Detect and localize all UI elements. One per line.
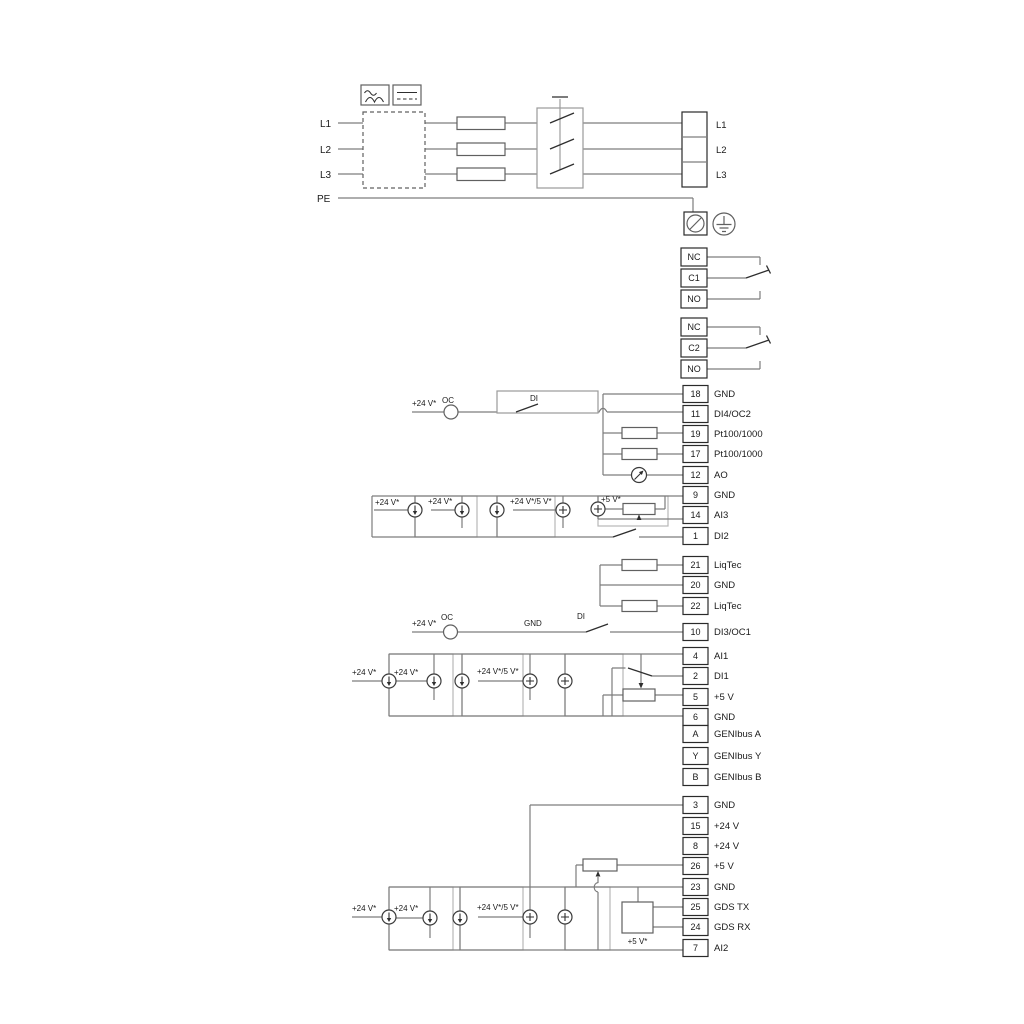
terminal-label: +5 V <box>714 692 734 703</box>
terminal-label: L1 <box>716 120 727 131</box>
terminal-label: AI3 <box>714 510 728 521</box>
terminal-number: 24 <box>690 922 700 932</box>
liqtec-sensor-icon <box>622 560 657 571</box>
terminal-label: GND <box>714 490 735 501</box>
terminal-label: +5 V <box>714 861 734 872</box>
fuse-icon <box>457 168 505 181</box>
group-box <box>460 887 523 950</box>
terminal-number: 17 <box>690 449 700 459</box>
relay-wires <box>707 257 760 369</box>
io2-terminal-block: 10 4 2 5 6 A Y B DI3/OC1 AI1 DI1 +5 V GN… <box>683 624 762 786</box>
current-source-icon <box>427 674 441 688</box>
terminal-number: 26 <box>690 861 700 871</box>
supply-label: +24 V* <box>394 904 418 913</box>
pt100-sensor-icon <box>622 449 657 460</box>
voltage-source-icon <box>556 503 570 517</box>
terminal-number: 22 <box>690 601 700 611</box>
terminal-label: GENIbus B <box>714 772 762 783</box>
fuse-icon <box>457 117 505 130</box>
terminal-label: GENIbus Y <box>714 751 762 762</box>
terminal-label: L3 <box>716 170 727 181</box>
di-function-box <box>497 391 598 413</box>
phase-label: L3 <box>320 170 332 181</box>
terminal-label: Pt100/1000 <box>714 449 763 460</box>
terminal-number: 11 <box>691 409 700 419</box>
terminal-number: 25 <box>690 902 700 912</box>
terminal-number: C2 <box>688 343 700 353</box>
di-label: DI <box>577 612 585 621</box>
terminal-label: AO <box>714 470 728 481</box>
terminal-label: GND <box>714 712 735 723</box>
current-source-icon <box>490 503 504 517</box>
terminal-label: GDS TX <box>714 902 750 913</box>
liqtec-sensor-icon <box>622 601 657 612</box>
relay1-terminal-block: NC C1 NO <box>681 248 707 308</box>
earth-ground-icon <box>713 213 735 235</box>
terminal-label: GND <box>714 882 735 893</box>
terminal-number: 18 <box>690 389 700 399</box>
relay2-terminal-block: NC C2 NO <box>681 318 707 378</box>
phase-label: L2 <box>320 145 332 156</box>
voltage-source-icon <box>523 674 537 688</box>
dc-symbol-icon <box>393 85 421 105</box>
fuse-icon <box>457 143 505 156</box>
terminal-number: Y <box>692 751 698 761</box>
io-section-2: +24 V* OC GND DI +24 V* +24 V* +24 V*/5 … <box>352 612 762 786</box>
terminal-number: 1 <box>693 531 698 541</box>
filter-box <box>363 112 425 188</box>
terminal-label: +24 V <box>714 841 740 852</box>
supply-label: +24 V* <box>412 619 436 628</box>
group-box <box>462 654 523 716</box>
terminal-label: AI2 <box>714 943 728 954</box>
terminal-label: LiqTec <box>714 601 742 612</box>
meter-icon <box>632 468 647 483</box>
terminal-number: 8 <box>693 841 698 851</box>
oc-label: OC <box>441 613 453 622</box>
io-section-3: +24 V* +24 V* +24 V*/5 V* +5 V* 3 15 8 2… <box>352 797 751 957</box>
terminal-label: GDS RX <box>714 922 751 933</box>
terminal-label: +24 V <box>714 821 740 832</box>
current-source-icon <box>455 503 469 517</box>
supply-label: +24 V* <box>428 497 452 506</box>
terminal-number: 12 <box>690 470 700 480</box>
terminal-number: 10 <box>690 627 700 637</box>
current-source-icon <box>408 503 422 517</box>
terminal-number: 15 <box>690 821 700 831</box>
supply-label: +24 V*/5 V* <box>477 667 519 676</box>
supply-label: +24 V*/5 V* <box>477 903 519 912</box>
supply-label: +5 V* <box>601 495 621 504</box>
current-source-icon <box>423 911 437 925</box>
current-source-icon <box>453 911 467 925</box>
terminal-label: GENIbus A <box>714 729 762 740</box>
terminal-label: GND <box>714 389 735 400</box>
terminal-number: 21 <box>690 560 700 570</box>
terminal-number: C1 <box>688 273 700 283</box>
liqtec-section: 21 20 22 LiqTec GND LiqTec <box>600 557 742 615</box>
wiring-diagram: L1 L2 L3 PE L1 L2 L3 NC C1 NO NC C2 NO <box>0 0 1024 1024</box>
potentiometer-icon <box>583 859 617 877</box>
main-switch-icon <box>537 97 583 188</box>
terminal-number: NC <box>688 322 701 332</box>
terminal-number: 5 <box>693 692 698 702</box>
terminal-number: 4 <box>693 651 698 661</box>
potentiometer-icon <box>623 504 655 521</box>
voltage-source-icon <box>523 910 537 924</box>
supply-label: +24 V* <box>394 668 418 677</box>
open-collector-icon <box>444 405 458 419</box>
voltage-source-icon <box>558 910 572 924</box>
gnd-label: GND <box>524 619 542 628</box>
group-box <box>565 654 623 716</box>
terminal-label: LiqTec <box>714 560 742 571</box>
supply-label: +24 V* <box>375 498 399 507</box>
liqtec-wires <box>600 565 683 606</box>
terminal-label: DI3/OC1 <box>714 627 751 638</box>
pt100-sensor-icon <box>622 428 657 439</box>
terminal-number: 2 <box>693 671 698 681</box>
potentiometer-icon <box>623 689 655 701</box>
terminal-number: 7 <box>693 943 698 953</box>
open-collector-icon <box>444 625 458 639</box>
terminal-number: 14 <box>690 510 700 520</box>
terminal-number: 3 <box>693 800 698 810</box>
sensor-module-box <box>622 902 653 933</box>
io3-terminal-block: 3 15 8 26 23 25 24 7 GND +24 V +24 V +5 … <box>683 797 751 957</box>
terminal-label: DI4/OC2 <box>714 409 751 420</box>
diagram-canvas: L1 L2 L3 PE L1 L2 L3 NC C1 NO NC C2 NO <box>0 0 1024 1024</box>
io1-terminal-block: 18 11 19 17 12 9 14 1 GND DI4/OC2 Pt100/… <box>683 386 763 545</box>
supply-label: +5 V* <box>628 937 648 946</box>
terminal-number: B <box>692 772 698 782</box>
terminal-number: A <box>692 729 698 739</box>
terminal-label: DI2 <box>714 531 729 542</box>
wiper-arrow <box>639 683 644 689</box>
terminal-label: GND <box>714 800 735 811</box>
voltage-source-icon <box>558 674 572 688</box>
phase-label: PE <box>317 194 331 205</box>
changeover-contact-icon <box>746 266 771 349</box>
mains-terminal-block <box>682 112 707 187</box>
supply-label: +24 V*/5 V* <box>510 497 552 506</box>
terminal-number: 9 <box>693 490 698 500</box>
terminal-label: AI1 <box>714 651 728 662</box>
terminal-number: 19 <box>690 429 700 439</box>
supply-label: +24 V* <box>352 904 376 913</box>
terminal-number: 20 <box>690 580 700 590</box>
terminal-label: L2 <box>716 145 727 156</box>
terminal-label: DI1 <box>714 671 729 682</box>
terminal-number: NO <box>687 364 701 374</box>
terminal-label: Pt100/1000 <box>714 429 763 440</box>
voltage-source-icon <box>591 502 605 516</box>
group-box <box>389 654 453 716</box>
power-section: L1 L2 L3 PE L1 L2 L3 <box>317 85 735 235</box>
supply-label: +24 V* <box>412 399 436 408</box>
oc-label: OC <box>442 396 454 405</box>
liqtec-terminal-block: 21 20 22 LiqTec GND LiqTec <box>683 557 742 615</box>
terminal-number: NC <box>688 252 701 262</box>
switch-icon <box>516 404 636 537</box>
terminal-label: GND <box>714 580 735 591</box>
screw-terminal-icon <box>684 212 707 235</box>
terminal-number: 23 <box>690 882 700 892</box>
terminal-number: NO <box>687 294 701 304</box>
ac-symbol-icon <box>361 85 389 105</box>
relay-section: NC C1 NO NC C2 NO <box>681 248 771 378</box>
current-source-icon <box>455 674 469 688</box>
di-label: DI <box>530 394 538 403</box>
supply-label: +24 V* <box>352 668 376 677</box>
phase-label: L1 <box>320 119 332 130</box>
terminal-number: 6 <box>693 712 698 722</box>
io-section-1: +24 V* OC DI +24 V* +24 V* +24 V*/5 V* +… <box>372 386 763 545</box>
